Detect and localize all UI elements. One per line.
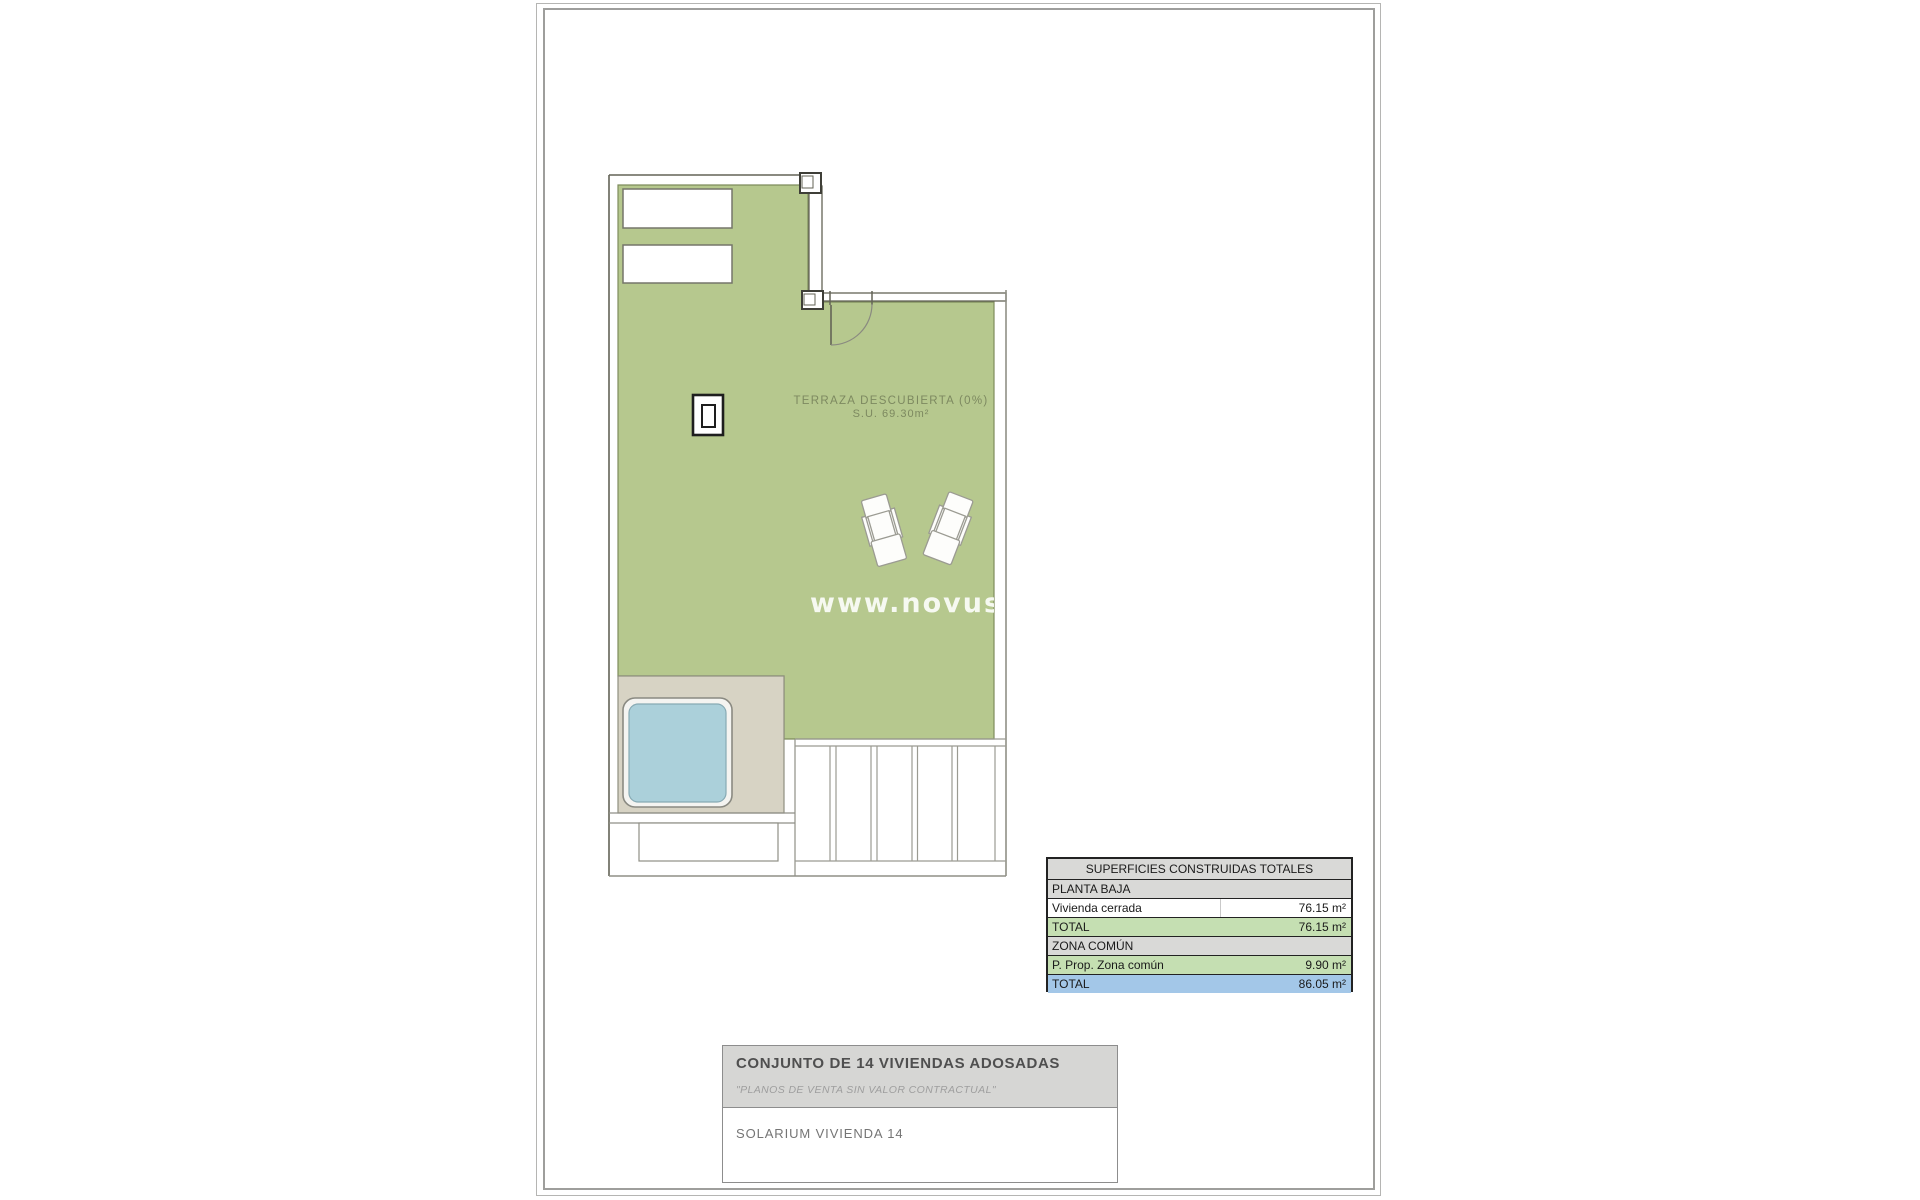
table-row: P. Prop. Zona común 9.90 m²: [1048, 955, 1351, 974]
row-label: Vivienda cerrada: [1048, 901, 1142, 915]
column: [800, 173, 821, 193]
column-divider: [1220, 899, 1221, 917]
row-value: 86.05 m²: [1299, 977, 1351, 991]
railing: [795, 739, 1006, 861]
table-row: Vivienda cerrada 76.15 m²: [1048, 898, 1351, 917]
skylight-opening: [623, 189, 732, 228]
project-title: CONJUNTO DE 14 VIVIENDAS ADOSADAS: [736, 1055, 1117, 1072]
row-label: TOTAL: [1048, 977, 1090, 991]
chimney-shaft: [693, 395, 723, 435]
skylight-opening: [623, 245, 732, 283]
table-row: ZONA COMÚN: [1048, 936, 1351, 955]
title-block: CONJUNTO DE 14 VIVIENDAS ADOSADAS "PLANO…: [722, 1045, 1118, 1183]
row-value: 9.90 m²: [1305, 958, 1351, 972]
table-row: TOTAL 76.15 m²: [1048, 917, 1351, 936]
table-row: TOTAL 86.05 m²: [1048, 974, 1351, 993]
areas-table-header-label: SUPERFICIES CONSTRUIDAS TOTALES: [1086, 862, 1313, 876]
terrace-label-area: S.U. 69.30m²: [853, 408, 930, 420]
row-label: ZONA COMÚN: [1048, 939, 1133, 953]
pool: [623, 698, 732, 807]
sheet-name: SOLARIUM VIVIENDA 14: [736, 1126, 1117, 1141]
column: [802, 291, 823, 309]
row-label: PLANTA BAJA: [1048, 882, 1130, 896]
row-value: 76.15 m²: [1299, 901, 1351, 915]
title-block-sheet: SOLARIUM VIVIENDA 14: [723, 1108, 1117, 1141]
row-label: TOTAL: [1048, 920, 1090, 934]
areas-table: SUPERFICIES CONSTRUIDAS TOTALES PLANTA B…: [1046, 857, 1353, 992]
watermark: www.novusha: [810, 588, 1043, 619]
areas-table-header: SUPERFICIES CONSTRUIDAS TOTALES: [1048, 859, 1351, 879]
row-label: P. Prop. Zona común: [1048, 958, 1164, 972]
row-value: 76.15 m²: [1299, 920, 1351, 934]
floor-plan: TERRAZA DESCUBIERTA (0%) S.U. 69.30m² ww…: [0, 0, 1920, 1200]
table-row: PLANTA BAJA: [1048, 879, 1351, 898]
plan-sheet: TERRAZA DESCUBIERTA (0%) S.U. 69.30m² ww…: [0, 0, 1920, 1200]
title-block-header: CONJUNTO DE 14 VIVIENDAS ADOSADAS "PLANO…: [723, 1046, 1117, 1108]
terrace-label: TERRAZA DESCUBIERTA (0%): [793, 395, 988, 407]
disclaimer-text: "PLANOS DE VENTA SIN VALOR CONTRACTUAL": [736, 1084, 1117, 1096]
